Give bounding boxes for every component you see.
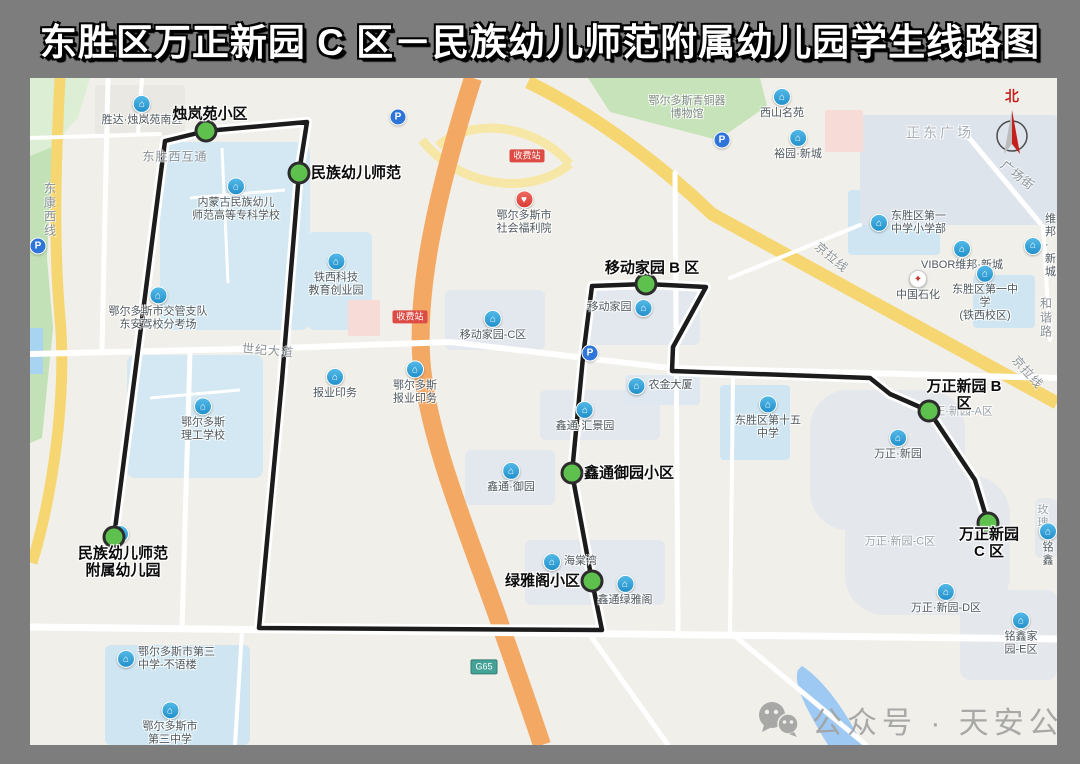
map-poi: ⌂万正·新园 bbox=[874, 429, 922, 461]
wechat-icon bbox=[756, 701, 802, 739]
map-poi: 正东广场 bbox=[906, 125, 974, 142]
building-icon: ⌂ bbox=[543, 553, 561, 571]
building-icon: ⌂ bbox=[889, 429, 907, 447]
school-icon: ⌂ bbox=[227, 177, 245, 195]
building-icon: ⌂ bbox=[635, 299, 653, 317]
stop-marker bbox=[581, 570, 604, 593]
stop-marker bbox=[561, 462, 584, 485]
stop-label: 移动家园 B 区 bbox=[605, 259, 699, 276]
map-poi: ⌂报业印务 bbox=[313, 368, 357, 400]
road-label: 东康西线 bbox=[42, 182, 59, 238]
toll-station-badge: 收费站 bbox=[392, 310, 427, 323]
map-poi: ⌂鄂尔多斯 报业印务 bbox=[393, 360, 437, 405]
toll-station-badge: 收费站 bbox=[509, 149, 544, 162]
map-poi: ✦中国石化 bbox=[896, 270, 940, 302]
welfare-icon: ♥ bbox=[515, 190, 533, 208]
map-poi: ⌂万正·新园-D区 bbox=[911, 583, 981, 615]
map-poi: ⌂东胜区第一中学 (铁西校区) bbox=[949, 265, 1021, 324]
page: { "title": "东胜区万正新园 C 区－民族幼儿师范附属幼儿园学生线路图… bbox=[0, 0, 1080, 764]
school-icon: ⌂ bbox=[117, 650, 135, 668]
school-icon: ⌂ bbox=[870, 214, 888, 232]
map-poi: ⌂东胜区第一 中学小学部 bbox=[870, 210, 946, 236]
road-label: 东胜西互通 bbox=[142, 148, 207, 165]
building-icon: ⌂ bbox=[149, 286, 167, 304]
building-icon: ⌂ bbox=[1024, 237, 1042, 255]
building-icon: ⌂ bbox=[484, 310, 502, 328]
building-icon: ⌂ bbox=[628, 377, 646, 395]
map-poi: ⌂西山名苑 bbox=[760, 88, 804, 120]
map-poi: ⌂农金大厦 bbox=[628, 377, 693, 395]
map-poi: ⌂鑫通绿雅阁 bbox=[598, 575, 653, 607]
map-poi: ⌂移动家园-C区 bbox=[460, 310, 527, 342]
compass-needle-icon bbox=[992, 106, 1032, 164]
parking-icon: P bbox=[582, 345, 599, 362]
stop-label: 烛岚苑小区 bbox=[172, 105, 247, 122]
map-poi: ⌂东胜区第十五 中学 bbox=[735, 395, 801, 440]
page-title: 东胜区万正新园 C 区－民族幼儿师范附属幼儿园学生线路图 bbox=[40, 12, 1040, 66]
stop-label: 民族幼儿师范 bbox=[311, 164, 401, 181]
stop-marker bbox=[288, 162, 311, 185]
building-icon: ⌂ bbox=[616, 575, 634, 593]
building-icon: ⌂ bbox=[502, 462, 520, 480]
stop-marker bbox=[195, 120, 218, 143]
map-poi: ⌂鑫通·汇景园 bbox=[556, 401, 615, 433]
school-icon: ⌂ bbox=[759, 395, 777, 413]
watermark-text: 公众号 · 天安公交 bbox=[812, 698, 1057, 742]
building-icon: ⌂ bbox=[576, 401, 594, 419]
highway-number-badge: G65 bbox=[470, 659, 497, 674]
map-poi: ⌂内蒙古民族幼儿 师范高等专科学校 bbox=[192, 177, 280, 222]
map-poi: ⌂铭鑫 bbox=[1039, 522, 1057, 567]
map-poi: ⌂裕园·新城 bbox=[774, 129, 822, 161]
map-poi: ⌂鄂尔多斯市第三 中学-不语楼 bbox=[117, 646, 215, 672]
building-icon: ⌂ bbox=[1012, 611, 1030, 629]
map-poi: 万正·新园-C区 bbox=[865, 535, 935, 548]
building-icon: ⌂ bbox=[789, 129, 807, 147]
stop-label: 万正新园 C 区 bbox=[955, 526, 1023, 561]
building-icon: ⌂ bbox=[133, 95, 151, 113]
building-icon: ⌂ bbox=[1039, 522, 1057, 540]
school-icon: ⌂ bbox=[194, 397, 212, 415]
school-icon: ⌂ bbox=[976, 265, 994, 283]
stop-label: 鑫通御园小区 bbox=[584, 464, 674, 481]
map-poi: ⌂鄂尔多斯市交管支队 东安驾校分考场 bbox=[109, 286, 208, 331]
school-icon: ⌂ bbox=[161, 701, 179, 719]
map-poi: ⌂移动家园 bbox=[588, 299, 653, 317]
building-icon: ⌂ bbox=[326, 368, 344, 386]
parking-icon: P bbox=[390, 109, 407, 126]
compass: 北 bbox=[992, 86, 1032, 164]
map-poi: ⌂海棠湾 bbox=[543, 553, 597, 571]
building-icon: ⌂ bbox=[937, 583, 955, 601]
map-poi: ⌂鄂尔多斯 理工学校 bbox=[181, 397, 225, 442]
title-bar: 东胜区万正新园 C 区－民族幼儿师范附属幼儿园学生线路图 bbox=[0, 0, 1080, 78]
building-icon: ⌂ bbox=[953, 240, 971, 258]
map-poi: ⌂鄂尔多斯市 第三中学 bbox=[143, 701, 198, 745]
stop-label: 绿雅阁小区 bbox=[505, 572, 580, 589]
map-poi: ⌂鑫通·御园 bbox=[487, 462, 535, 494]
route-map: ⌂胜达·烛岚苑南区 ⌂内蒙古民族幼儿 师范高等专科学校 ⌂铁西科技 教育创业园 … bbox=[30, 78, 1057, 745]
parking-icon: P bbox=[714, 132, 731, 149]
parking-icon: P bbox=[30, 238, 47, 255]
building-icon: ⌂ bbox=[327, 252, 345, 270]
map-poi: 鄂尔多斯青铜器 博物馆 bbox=[649, 95, 726, 121]
map-poi: ⌂铁西科技 教育创业园 bbox=[309, 252, 364, 297]
map-poi: ♥鄂尔多斯市 社会福利院 bbox=[497, 190, 552, 235]
map-poi: ⌂维邦·新城 bbox=[1024, 213, 1056, 279]
stop-label: 万正新园 B 区 bbox=[918, 378, 1011, 413]
map-poi: ⌂铭鑫家园-E区 bbox=[1003, 611, 1039, 656]
gas-station-icon: ✦ bbox=[909, 270, 927, 288]
building-icon: ⌂ bbox=[406, 360, 424, 378]
building-icon: ⌂ bbox=[773, 88, 791, 106]
stop-label: 民族幼儿师范 附属幼儿园 bbox=[78, 545, 168, 580]
north-label: 北 bbox=[1005, 86, 1019, 106]
watermark: 公众号 · 天安公交 bbox=[756, 698, 1057, 742]
road-label: 和谐路 bbox=[1038, 297, 1055, 339]
map-poi: ⌂胜达·烛岚苑南区 bbox=[102, 95, 183, 127]
